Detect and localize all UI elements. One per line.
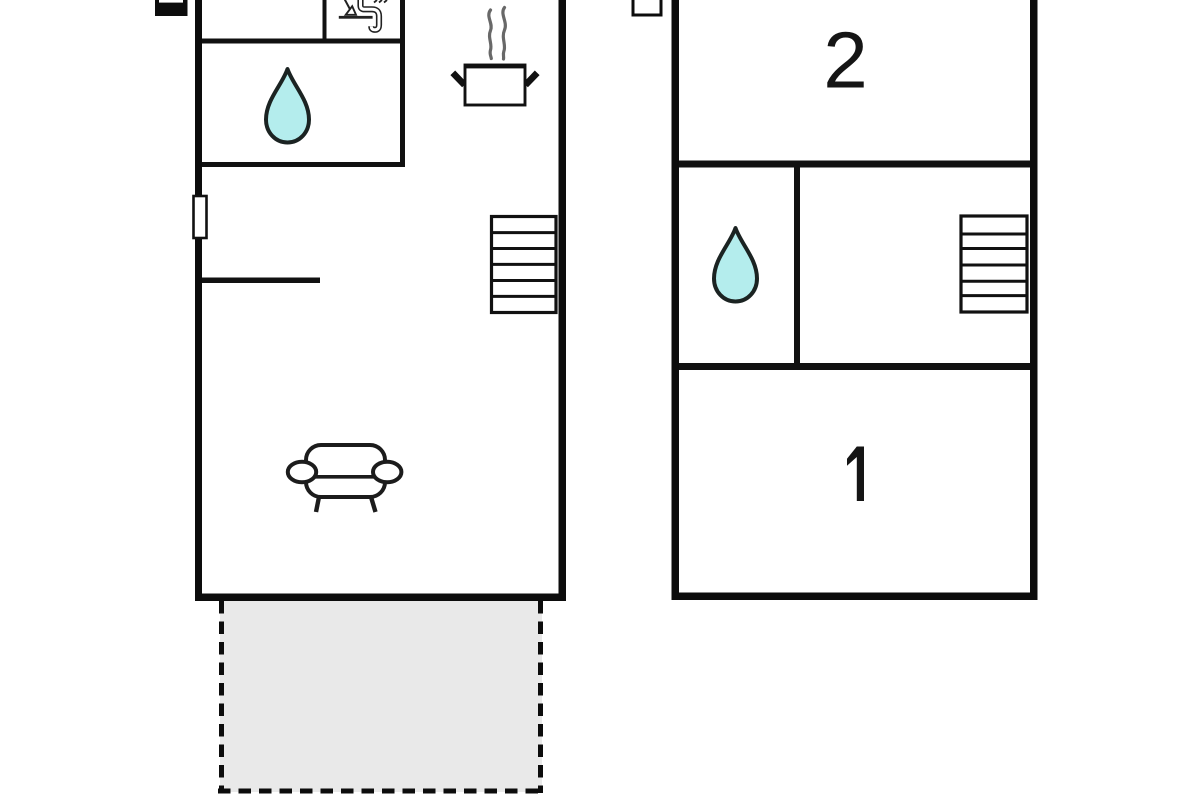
svg-text:2: 2 [823,16,868,105]
